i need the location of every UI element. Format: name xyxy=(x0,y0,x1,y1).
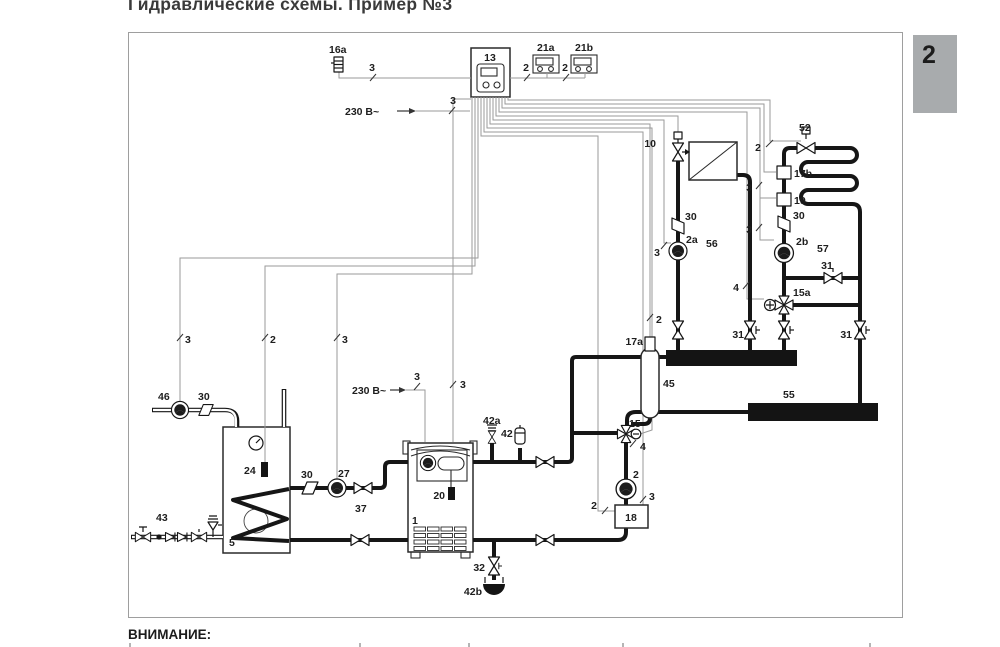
label-45: 45 xyxy=(663,378,675,390)
label-30-c56: 30 xyxy=(685,211,697,223)
wire-label: 2 xyxy=(270,334,276,346)
sensor-24-icon xyxy=(261,462,268,477)
pump-2b xyxy=(775,244,794,263)
label-30-load: 30 xyxy=(301,469,313,481)
label-18: 18 xyxy=(625,512,637,524)
label-42: 42 xyxy=(501,428,513,440)
pump-27 xyxy=(328,479,346,497)
label-42a: 42a xyxy=(483,415,501,427)
label-16a: 16a xyxy=(329,44,347,56)
wire-label: 3 xyxy=(649,491,655,503)
label-30-c57: 30 xyxy=(793,210,805,222)
label-46: 46 xyxy=(158,391,170,403)
pump-46 xyxy=(171,401,188,418)
radiator-manifold-upper xyxy=(666,350,797,366)
manual-page: Гидравлические схемы. Пример №3 2 ВНИМАН… xyxy=(0,0,1000,647)
label-42b: 42b xyxy=(464,586,482,598)
label-230v-boiler: 230 В~ xyxy=(352,385,386,397)
pump-2 xyxy=(616,479,636,499)
plate-heat-exchanger xyxy=(682,142,737,180)
label-2-pump: 2 xyxy=(633,469,639,481)
label-2b: 2b xyxy=(796,236,808,248)
label-17a: 17a xyxy=(625,336,643,348)
label-20: 20 xyxy=(433,490,445,502)
wire-label: 3 xyxy=(342,334,348,346)
sensor-17b-icon xyxy=(777,166,791,179)
label-17b: 17b xyxy=(794,168,812,180)
attention-heading: ВНИМАНИЕ: xyxy=(128,627,211,642)
wire-label: 3 xyxy=(369,62,375,74)
label-21b: 21b xyxy=(575,42,593,54)
pump-2a xyxy=(669,242,687,260)
wire-label: 4 xyxy=(640,441,646,453)
label-56: 56 xyxy=(706,238,718,250)
label-55: 55 xyxy=(783,389,795,401)
radiator-manifold-55 xyxy=(748,403,878,421)
label-30-recirc: 30 xyxy=(198,391,210,403)
chapter-tab-number: 2 xyxy=(922,41,936,69)
label-2a: 2a xyxy=(686,234,698,246)
label-32: 32 xyxy=(473,562,485,574)
sensor-19-icon xyxy=(777,193,791,206)
clipped-text-line xyxy=(129,643,871,647)
label-21a: 21a xyxy=(537,42,555,54)
wire-label: 3 xyxy=(654,247,660,259)
wire-label: 3 xyxy=(460,379,466,391)
label-230v-top: 230 В~ xyxy=(345,106,379,118)
label-27: 27 xyxy=(338,468,350,480)
label-24: 24 xyxy=(244,465,256,477)
wire-label: 3 xyxy=(746,182,752,194)
wire-label: 2 xyxy=(656,314,662,326)
wire-label: 4 xyxy=(733,282,739,294)
label-1: 1 xyxy=(412,515,418,527)
label-5: 5 xyxy=(229,537,235,549)
label-37: 37 xyxy=(355,503,367,515)
wire-label: 3 xyxy=(450,95,456,107)
label-10: 10 xyxy=(644,138,656,150)
label-13: 13 xyxy=(484,52,496,64)
wire-label: 2 xyxy=(523,62,529,74)
label-15: 15 xyxy=(629,418,641,430)
wire-label: 3 xyxy=(185,334,191,346)
wire-label: 3 xyxy=(746,224,752,236)
label-52: 52 xyxy=(799,122,811,134)
wire-label: 3 xyxy=(414,371,420,383)
sensor-20-icon xyxy=(448,487,455,500)
label-31-b: 31 xyxy=(821,260,833,272)
label-19: 19 xyxy=(794,195,806,207)
air-vent-42-icon xyxy=(515,425,525,444)
wire-label: 2 xyxy=(755,142,761,154)
wire-label: 2 xyxy=(591,500,597,512)
label-43: 43 xyxy=(156,512,168,524)
wire-label: 2 xyxy=(562,62,568,74)
sensor-17a-icon xyxy=(645,337,655,351)
thermometer-icon xyxy=(249,436,263,450)
label-31-a: 31 xyxy=(732,329,744,341)
label-15a: 15a xyxy=(793,287,811,299)
label-57: 57 xyxy=(817,243,829,255)
page-title: Гидравлические схемы. Пример №3 xyxy=(128,0,452,14)
hydraulic-scheme: Гидравлические схемы. Пример №3 2 ВНИМАН… xyxy=(0,0,1000,647)
label-31-c: 31 xyxy=(840,329,852,341)
